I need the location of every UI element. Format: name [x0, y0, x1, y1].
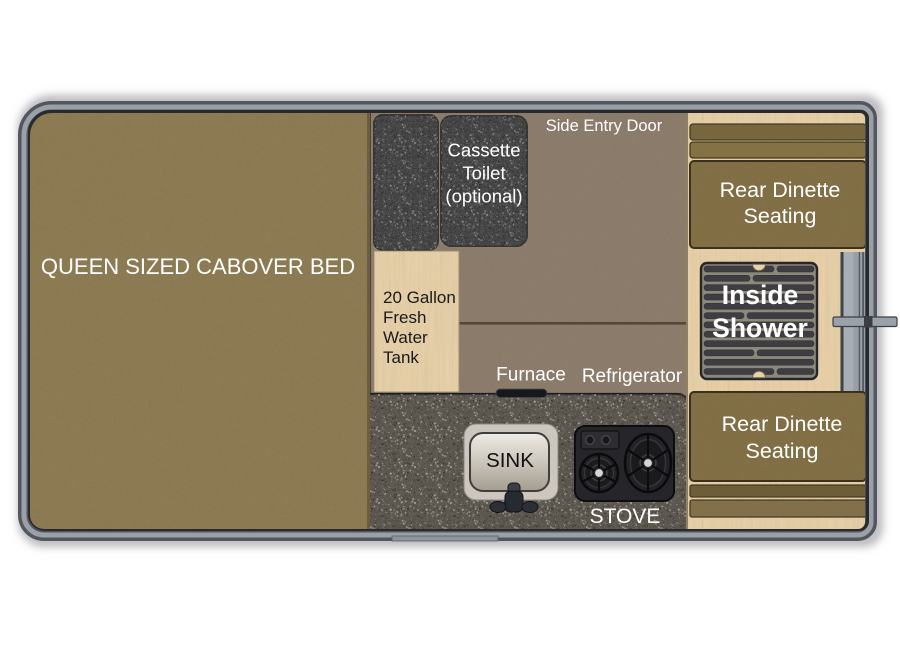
svg-text:20 Gallon: 20 Gallon: [383, 288, 456, 307]
svg-text:QUEEN SIZED CABOVER BED: QUEEN SIZED CABOVER BED: [41, 254, 355, 279]
svg-text:Seating: Seating: [746, 439, 819, 463]
svg-text:Water: Water: [383, 328, 428, 347]
svg-text:Furnace: Furnace: [496, 365, 566, 386]
svg-text:(optional): (optional): [445, 186, 522, 207]
svg-text:Fresh: Fresh: [383, 308, 426, 327]
svg-text:Rear Dinette: Rear Dinette: [722, 412, 843, 436]
svg-text:Tank: Tank: [383, 348, 419, 367]
svg-text:Seating: Seating: [744, 204, 817, 228]
svg-text:SINK: SINK: [486, 449, 534, 472]
svg-text:Cassette: Cassette: [447, 140, 520, 161]
svg-text:STOVE: STOVE: [590, 505, 661, 528]
svg-text:Rear Dinette: Rear Dinette: [720, 178, 841, 202]
svg-text:Refrigerator: Refrigerator: [582, 366, 683, 387]
svg-text:Side Entry Door: Side Entry Door: [546, 117, 663, 135]
svg-text:Shower: Shower: [712, 313, 808, 343]
svg-text:Toilet: Toilet: [462, 163, 505, 184]
svg-text:Inside: Inside: [722, 280, 799, 310]
